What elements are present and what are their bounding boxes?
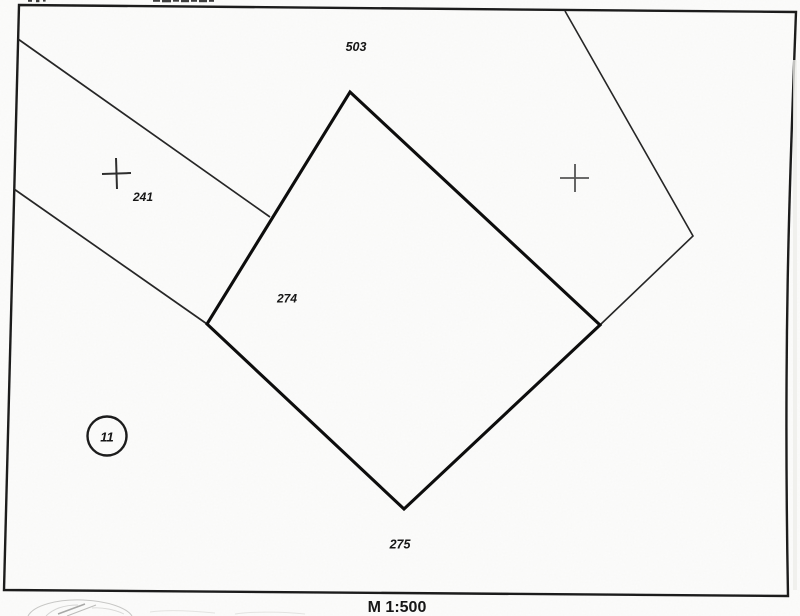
svg-text:275: 275	[389, 538, 412, 552]
svg-text:11: 11	[100, 430, 114, 445]
svg-text:274: 274	[276, 292, 297, 306]
svg-text:241: 241	[132, 190, 153, 204]
svg-text:503: 503	[346, 40, 367, 54]
svg-text:M 1:500: M 1:500	[368, 599, 427, 616]
